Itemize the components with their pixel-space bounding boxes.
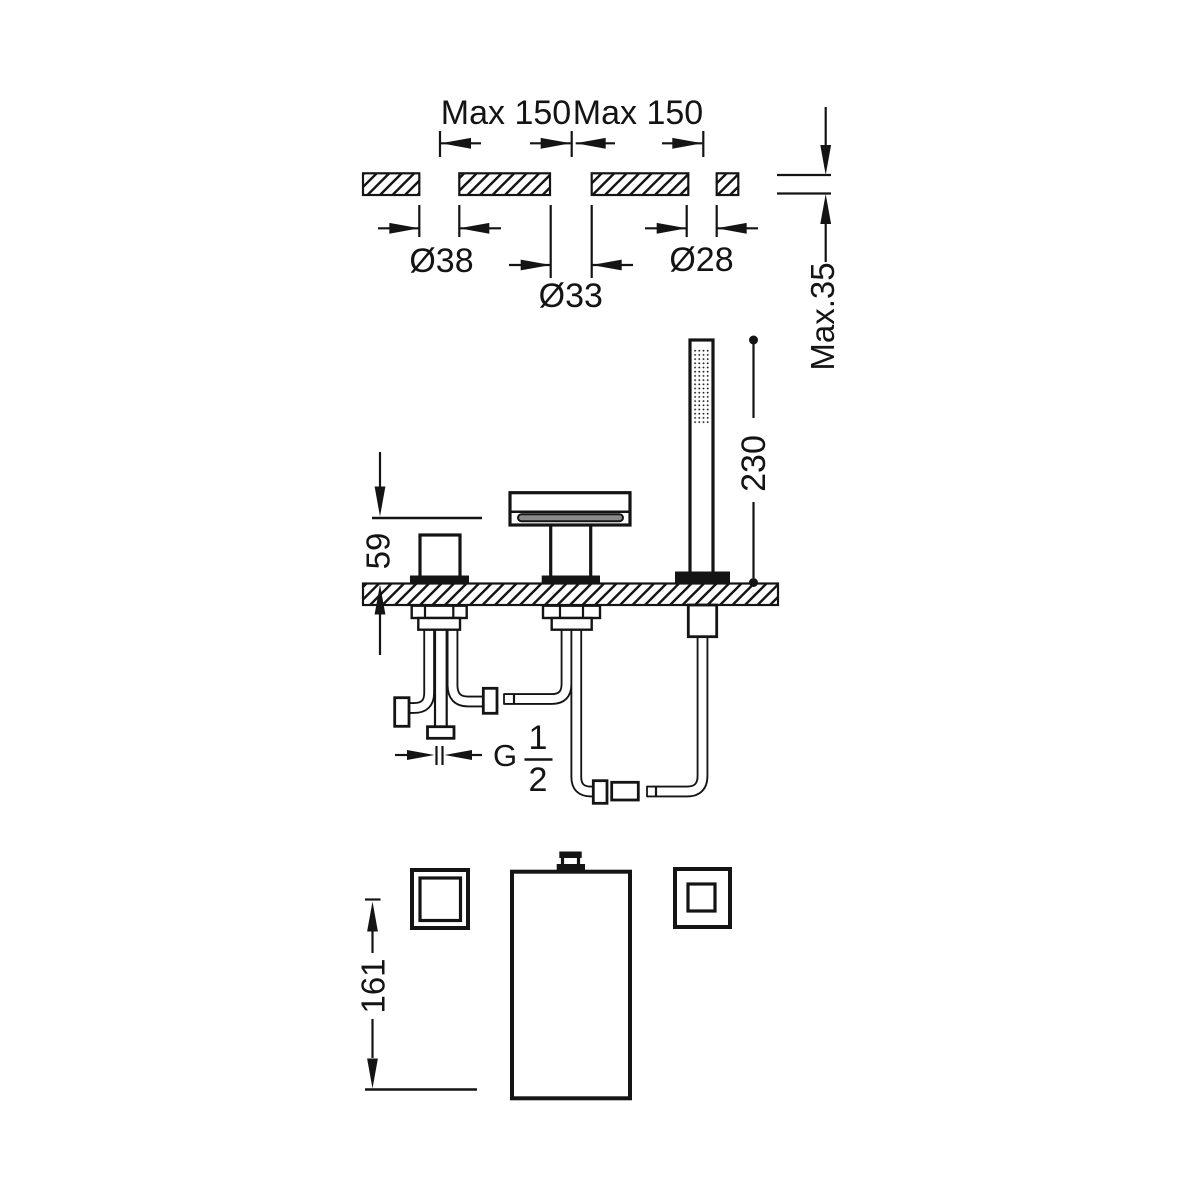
arrowhead-icon	[541, 138, 571, 149]
spout-stem	[551, 525, 591, 576]
mounting-nut	[552, 618, 592, 630]
spout-base-plate	[542, 576, 600, 584]
spout-plan	[512, 852, 630, 1099]
arrowhead-icon	[657, 223, 687, 234]
dim-dot	[749, 336, 758, 345]
dim-label-dia28: Ø28	[669, 241, 733, 279]
dim-hole-diameter-28: Ø28	[645, 205, 758, 279]
dim-label-59: 59	[360, 533, 397, 570]
spout-tab-cap	[559, 852, 581, 859]
deck-segment	[363, 173, 419, 195]
thread-label-g: G	[493, 738, 517, 773]
thread-label-denominator: 2	[529, 761, 548, 799]
deck-segment	[459, 173, 550, 195]
deck-side-section	[363, 584, 778, 606]
dim-label-max35: Max.35	[804, 262, 841, 370]
hose-union	[612, 782, 639, 800]
arrowhead-icon	[389, 223, 419, 234]
handshower-holder-plan	[675, 869, 730, 927]
handshower-spray-face	[694, 348, 711, 424]
underdeck-spout-connection	[504, 606, 638, 804]
dim-dot	[749, 578, 758, 587]
mounting-nut	[543, 606, 600, 618]
technical-drawing-page: Max 150 Max 150 Ø38 Ø33 Ø28	[0, 0, 1200, 1200]
dim-label-230: 230	[735, 435, 773, 492]
spout-body-outline	[512, 872, 630, 1099]
spout-tab-neck	[563, 858, 579, 865]
holder-inner-square	[688, 884, 715, 911]
dim-label-max150-right: Max 150	[573, 94, 703, 132]
hose-connector-block	[688, 605, 716, 637]
handshower-holder-base	[675, 572, 730, 584]
dim-label-161: 161	[355, 958, 392, 1013]
arrowhead-icon	[521, 260, 551, 271]
handle-plan	[412, 870, 468, 928]
mounting-nut	[418, 618, 460, 630]
handshower	[675, 340, 730, 584]
underdeck-valve-left	[395, 606, 497, 739]
arrowhead-icon	[672, 138, 702, 149]
arrowhead-icon	[407, 750, 435, 760]
hose-fitting	[483, 688, 497, 713]
dim-deck-thickness-max35: Max.35	[777, 107, 841, 371]
dim-handshower-height-230: 230	[735, 336, 773, 588]
valve-stem-rod	[435, 630, 447, 727]
arrowhead-icon	[820, 194, 831, 224]
deck-segment	[717, 173, 739, 195]
arrowhead-icon	[592, 260, 622, 271]
arrowhead-icon	[367, 902, 378, 932]
plan-view: 161	[355, 852, 731, 1099]
underdeck-handshower-hose	[647, 605, 717, 797]
side-elevation-view: 59 230 G 1 2	[360, 336, 779, 804]
deck-cross-section-top	[363, 173, 738, 195]
arrowhead-icon	[367, 1059, 378, 1089]
dim-label-max150-left: Max 150	[441, 94, 571, 132]
arrowhead-icon	[375, 487, 386, 517]
handle-knob	[420, 535, 460, 578]
deck-segment	[592, 173, 689, 195]
dim-hole-diameter-38: Ø38	[378, 205, 501, 280]
hose-fitting	[593, 781, 607, 804]
top-section-view: Max 150 Max 150 Ø38 Ø33 Ø28	[363, 94, 841, 371]
dim-label-dia33: Ø33	[539, 277, 603, 315]
dim-hole-diameter-33: Ø33	[509, 205, 633, 315]
hose-fitting	[395, 698, 409, 727]
arrowhead-icon	[441, 138, 471, 149]
thread-end-block	[428, 727, 455, 739]
thread-label-numerator: 1	[529, 719, 548, 757]
mounting-nut	[412, 606, 467, 618]
dim-thread-g-half: G 1 2	[395, 719, 553, 799]
arrowhead-icon	[820, 145, 831, 175]
handle-base-plate	[410, 576, 469, 584]
handle-inner-square	[420, 878, 461, 921]
handle-valve	[410, 535, 469, 584]
spout-waterfall-slot	[518, 514, 623, 521]
dim-label-dia38: Ø38	[409, 242, 473, 280]
arrowhead-icon	[445, 750, 473, 760]
arrowhead-icon	[576, 138, 606, 149]
bath-deck	[363, 584, 778, 606]
arrowhead-icon	[717, 223, 747, 234]
spout	[510, 493, 630, 584]
faucet-dimension-drawing: Max 150 Max 150 Ø38 Ø33 Ø28	[0, 0, 1200, 1200]
dim-max-150-spacing: Max 150 Max 150	[440, 94, 703, 157]
arrowhead-icon	[459, 223, 489, 234]
